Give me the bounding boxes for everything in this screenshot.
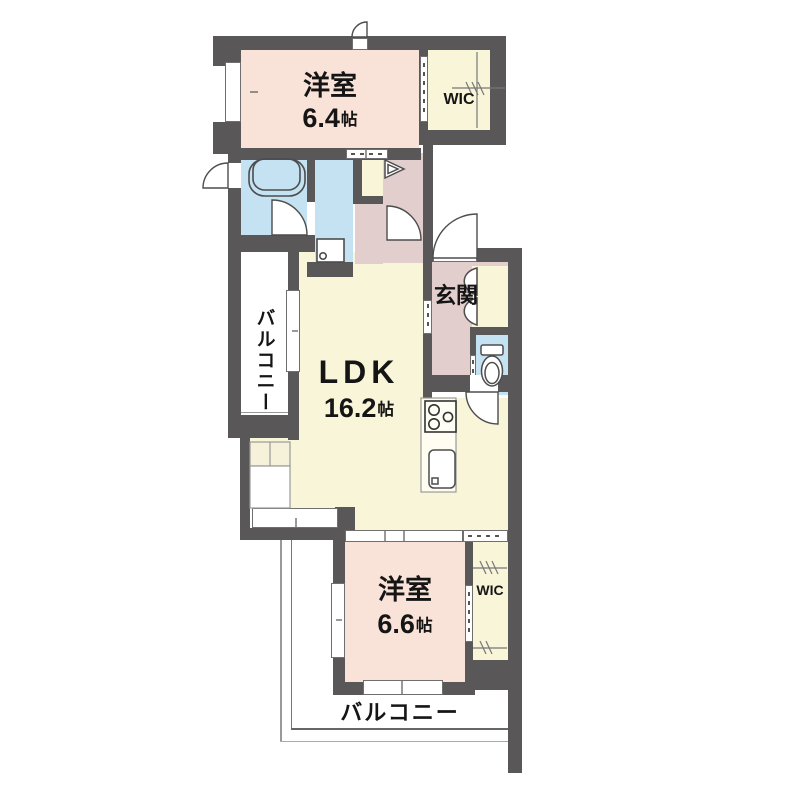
- bedroom-top-label: 洋室: [270, 66, 390, 100]
- bedroom-bottom-size-unit: 帖: [416, 612, 433, 636]
- stove-icon: [425, 401, 456, 432]
- entrance-door-arc: [433, 214, 477, 258]
- ldk-size-value: 16.2: [324, 393, 377, 424]
- kitchen-sink-icon: [429, 450, 455, 488]
- entrance-label: 玄関: [432, 280, 480, 308]
- wic-bottom-hanger-icon: [473, 561, 507, 654]
- bathtub-icon: [249, 159, 305, 196]
- wic-bottom-label: WIC: [471, 580, 509, 600]
- hall-door-arc: [387, 206, 421, 240]
- ldk-label: LDK: [298, 352, 420, 392]
- bedroom-bottom-label: 洋室: [345, 570, 465, 604]
- bedroom-top-size-unit: 帖: [341, 106, 358, 130]
- balcony-left-label: バルコニー: [250, 268, 278, 453]
- bedroom-bottom-size: 6.6帖: [345, 608, 465, 640]
- bedroom-top-size: 6.4帖: [270, 102, 390, 134]
- wic-top-label: WIC: [428, 90, 490, 110]
- toilet-icon: [481, 345, 503, 386]
- bedroom-top-size-value: 6.4: [302, 103, 340, 134]
- closet-folding-door-icon: [385, 160, 404, 178]
- top-window-door-arc: [352, 22, 367, 37]
- ldk-door-arc: [466, 392, 498, 424]
- bathroom-door-arc: [272, 200, 307, 235]
- floor-plan: 洋室 6.4帖 WICバルコニー玄関LDK 16.2帖 洋室 6.6帖 WICバ…: [0, 0, 800, 800]
- balcony-bottom-label: バルコニー: [325, 696, 475, 726]
- exterior-door-arc: [203, 163, 228, 188]
- ldk-size: 16.2帖: [298, 392, 420, 424]
- bedroom-bottom-size-value: 6.6: [377, 609, 415, 640]
- ldk-size-unit: 帖: [377, 396, 394, 420]
- washer-pan-icon: [317, 239, 344, 262]
